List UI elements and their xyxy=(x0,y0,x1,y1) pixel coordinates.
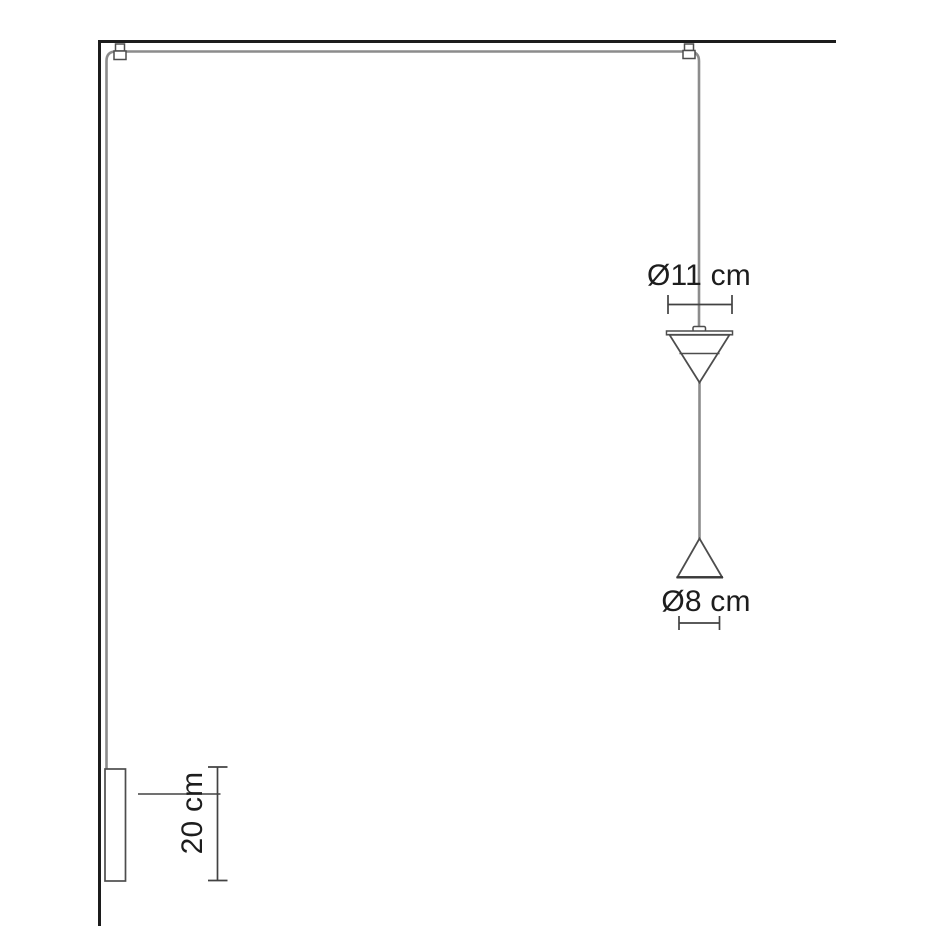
lower-shade-dimension xyxy=(679,616,720,630)
lower-cone-shade xyxy=(677,539,724,578)
clip-top xyxy=(116,44,125,51)
wall-tube-length-label: 20 cm xyxy=(177,733,209,893)
pendant-lamp-installation-diagram: Ø11 cm Ø8 cm 20 cm xyxy=(0,0,950,950)
clip-bottom xyxy=(114,51,126,60)
diagram-linework xyxy=(0,0,950,950)
shade-cone xyxy=(670,335,730,383)
power-cable xyxy=(107,52,700,770)
upper-cone-shade xyxy=(667,327,733,383)
ceiling-clip-right xyxy=(683,44,695,59)
ceiling-clip-left xyxy=(114,44,126,60)
upper-shade-diameter-label: Ø11 cm xyxy=(619,260,779,292)
clip-bottom xyxy=(683,51,695,59)
wall-tube-fixture xyxy=(105,769,126,881)
lower-shade-diameter-label: Ø8 cm xyxy=(626,586,786,618)
shade-cone xyxy=(678,539,723,578)
clip-top xyxy=(685,44,694,51)
